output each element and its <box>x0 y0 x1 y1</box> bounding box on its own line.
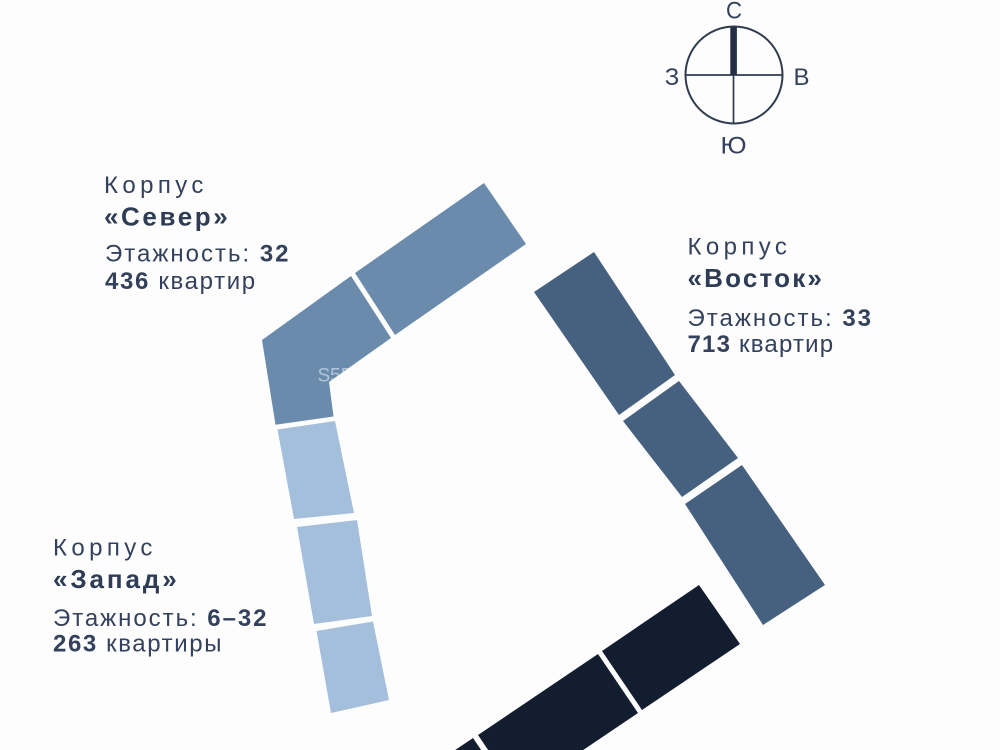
svg-text:Этажность: 6–32: Этажность: 6–32 <box>53 605 268 632</box>
svg-text:436 квартир: 436 квартир <box>105 268 257 295</box>
svg-text:«Запад»: «Запад» <box>53 564 180 594</box>
svg-text:«Восток»: «Восток» <box>688 263 825 293</box>
svg-text:Этажность: 32: Этажность: 32 <box>105 241 291 268</box>
svg-text:С: С <box>726 0 742 25</box>
svg-text:Корпус: Корпус <box>104 172 208 199</box>
svg-text:З: З <box>665 64 680 91</box>
svg-text:713 квартир: 713 квартир <box>688 331 835 358</box>
svg-text:Ю: Ю <box>721 133 747 160</box>
svg-text:S5Б: S5Б <box>318 366 354 387</box>
svg-text:Корпус: Корпус <box>688 233 792 260</box>
svg-text:«Север»: «Север» <box>104 202 230 232</box>
svg-text:Корпус: Корпус <box>53 535 157 562</box>
svg-text:263 квартиры: 263 квартиры <box>53 631 223 658</box>
svg-text:В: В <box>793 64 809 91</box>
svg-text:Этажность: 33: Этажность: 33 <box>688 305 874 332</box>
